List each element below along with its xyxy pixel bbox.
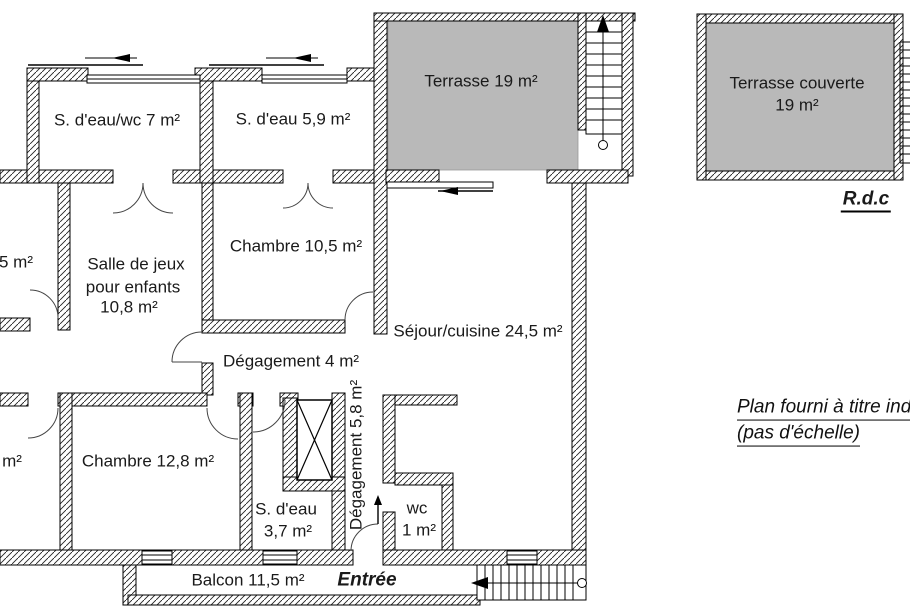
label-chambre128: Chambre 12,8 m² [82, 453, 214, 470]
stairs-entrance [471, 565, 587, 600]
double-door-chambre105-left [283, 183, 308, 208]
label-salle-line2: pour enfants [86, 279, 181, 296]
double-door-sdeauwc-left [113, 183, 143, 213]
label-entree: Entrée [337, 571, 396, 590]
label-room-left-bottom: m² [2, 453, 22, 470]
label-wc-line1: wc [407, 500, 428, 517]
label-balcon: Balcon 11,5 m² [191, 572, 304, 589]
stairs-terrace [586, 15, 622, 150]
label-sejour: Séjour/cuisine 24,5 m² [393, 323, 562, 340]
double-door-chambre105-right [308, 183, 333, 208]
label-terrasse: Terrasse 19 m² [424, 73, 537, 90]
label-chambre105: Chambre 10,5 m² [230, 238, 362, 255]
label-level-rdc: R.d.c [841, 190, 891, 213]
floor-plan-page: { "plan": { "rooms": { "sdeau_wc": "S. d… [0, 0, 910, 606]
door-entree-arrow [374, 495, 382, 505]
label-sdeau37-line2: 3,7 m² [264, 523, 312, 540]
label-terrasse-couverte: Terrasse couverte [729, 75, 864, 92]
door-room-left-bottom [28, 408, 58, 438]
window-chambre128 [142, 551, 172, 564]
note-line2: (pas d'échelle) [737, 424, 860, 447]
window-sejour [507, 551, 537, 564]
label-terrasse-couverte-area: 19 m² [775, 97, 818, 114]
window-sdeau37 [263, 551, 297, 564]
label-sdeau37-line1: S. d'eau [255, 501, 317, 518]
label-sdeau-wc: S. d'eau/wc 7 m² [54, 112, 180, 129]
door-room-left-top [30, 290, 58, 318]
label-room-left-top: 5 m² [0, 254, 33, 271]
sliding-door-sejour [387, 182, 493, 195]
double-door-sdeauwc-right [143, 183, 173, 213]
label-salle-line3: 10,8 m² [100, 299, 158, 316]
label-wc-line2: 1 m² [402, 522, 436, 539]
window-opening-indicator-1 [28, 54, 143, 65]
note-line1: Plan fourni à titre indic [737, 398, 910, 421]
label-degagement4: Dégagement 4 m² [223, 353, 359, 370]
label-sdeau59: S. d'eau 5,9 m² [236, 111, 351, 128]
terrasse-floor [388, 21, 578, 170]
door-chambre105 [345, 292, 373, 320]
door-salle-de-jeux [172, 332, 202, 362]
duct-shaft [297, 400, 332, 480]
label-salle-line1: Salle de jeux [87, 256, 184, 273]
door-chambre128 [207, 408, 238, 439]
window-opening-indicator-2 [209, 54, 324, 65]
label-degagement58: Dégagement 5,8 m² [348, 380, 365, 530]
